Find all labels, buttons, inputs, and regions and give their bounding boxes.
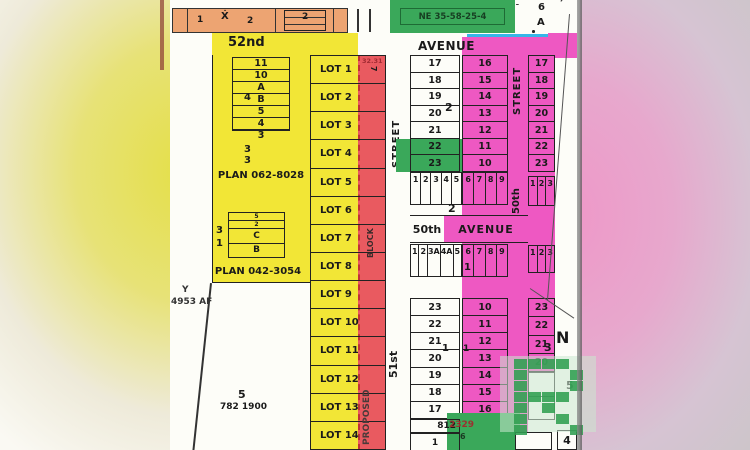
narrow-lot: 2 bbox=[538, 246, 547, 272]
lot-cell: 22 bbox=[529, 317, 554, 335]
lot-cell: 11 bbox=[463, 316, 507, 333]
left-box1-lot: 4 bbox=[233, 118, 289, 130]
boundary-tick bbox=[357, 9, 359, 32]
watermark-tile bbox=[556, 359, 569, 369]
plan1-lot-bottom: 3 bbox=[244, 155, 251, 166]
sheet-right-edge-shadow bbox=[577, 0, 582, 450]
block-1-label-east: 1 bbox=[463, 344, 469, 354]
avenue-50-name: 50th bbox=[413, 223, 441, 236]
strip-lot-2: 2 bbox=[247, 16, 253, 26]
watermark-gap bbox=[556, 381, 569, 391]
left-box1-lot: 10 bbox=[233, 70, 289, 82]
screenshot-canvas: SCALE 1:2000 2021 ST. WILSON, ALTA 1 Ẋ 2… bbox=[0, 0, 750, 450]
lot-cell: 16 bbox=[463, 56, 507, 73]
plan1-number: PLAN 062-8028 bbox=[212, 170, 310, 181]
watermark-tile bbox=[528, 392, 541, 402]
corner-lot-number: 6 bbox=[538, 2, 545, 13]
lot-cell: 20 bbox=[529, 106, 554, 123]
narrow-lot: 2 bbox=[538, 177, 547, 205]
lot-cell: 11 bbox=[463, 139, 507, 156]
clipped-scale-text: SCALE 1:2000 bbox=[215, 0, 293, 3]
left-box2-side-bottom: 1 bbox=[216, 238, 223, 249]
watermark-gap bbox=[528, 370, 541, 380]
lot-cell: 12 bbox=[463, 333, 507, 350]
west-bottom-table: 23222120191817 bbox=[410, 298, 460, 419]
narrow-lot: 9 bbox=[497, 173, 507, 204]
lot-cell: 23 bbox=[529, 155, 554, 171]
watermark-tile bbox=[542, 359, 555, 369]
corner-block-letter: A bbox=[537, 17, 545, 28]
watermark-tile bbox=[514, 414, 527, 424]
lot-cell: 13 bbox=[463, 106, 507, 123]
left-box2-side-top: 3 bbox=[216, 225, 223, 236]
left-box1-lot: 5 bbox=[233, 106, 289, 118]
left-box2-lot: C bbox=[229, 229, 284, 244]
yellow-lot-row: LOT 9 bbox=[311, 281, 385, 309]
lot-cell: 21 bbox=[411, 333, 459, 350]
watermark-gap bbox=[556, 403, 569, 413]
left-box1-side-lot: 4 bbox=[244, 92, 251, 103]
left-box1-lot: 11 bbox=[233, 58, 289, 70]
orange-parcel-strip: 1 Ẋ 2 2 bbox=[172, 8, 348, 33]
scan-edge-artifact bbox=[160, 0, 164, 70]
red-strip-dimension: 32.31 bbox=[362, 57, 383, 65]
watermark-tile bbox=[542, 403, 555, 413]
lot-cell: 22 bbox=[411, 316, 459, 333]
label-4: 4 bbox=[563, 434, 571, 447]
yellow-lot-row: LOT 2 bbox=[311, 84, 385, 112]
sub-box-line bbox=[285, 24, 325, 25]
strip-lot-x: Ẋ bbox=[221, 11, 229, 22]
left-box2-lot: 2 bbox=[229, 221, 284, 229]
parcel-boundary-line bbox=[192, 283, 211, 450]
watermark-gap bbox=[528, 414, 541, 424]
watermark-tile bbox=[514, 370, 527, 380]
far-east-top-table: 17181920212223 bbox=[528, 55, 555, 172]
left-box2-lot: B bbox=[229, 244, 284, 258]
yellow-lot-row: LOT 12 bbox=[311, 366, 385, 394]
narrow-lot: 5 bbox=[452, 173, 461, 204]
watermark-tile bbox=[556, 392, 569, 402]
street-50-label-vertical: STREET bbox=[512, 67, 523, 115]
narrow-lot: 8 bbox=[486, 245, 497, 276]
lot-cell: 23 bbox=[411, 155, 459, 171]
street-51-name-vertical: 51st bbox=[387, 351, 400, 378]
yellow-lot-row: LOT 14 bbox=[311, 422, 385, 449]
sub-box-lot-2: 2 bbox=[302, 12, 308, 22]
watermark-tile bbox=[514, 381, 527, 391]
lot-cell: 23 bbox=[411, 299, 459, 316]
lot-cell: 15 bbox=[463, 73, 507, 90]
watermark-gap bbox=[528, 403, 541, 413]
watermark-gap bbox=[542, 425, 555, 435]
strip-sub-box: 2 bbox=[284, 10, 326, 31]
lot-cell: 17 bbox=[411, 56, 459, 73]
watermark-gap bbox=[528, 381, 541, 391]
left-box2-lot: 5 bbox=[229, 213, 284, 221]
lot-cell: 14 bbox=[463, 89, 507, 106]
lot-cell: 19 bbox=[411, 368, 459, 385]
narrow-lot: 4 bbox=[442, 173, 452, 204]
block-1-label-west: 1 bbox=[442, 343, 449, 354]
watermark-tile bbox=[542, 392, 555, 402]
narrow-lot: 7 bbox=[474, 173, 485, 204]
mid-upper-west-lots: 12345 bbox=[410, 172, 462, 205]
quarter-label: NE 35-58-25-4 bbox=[419, 12, 487, 22]
yellow-lot-row: LOT 3 bbox=[311, 112, 385, 140]
plan1-lot-top: 3 bbox=[244, 144, 251, 155]
yellow-lot-row: LOT 6 bbox=[311, 197, 385, 225]
lot-cell: 21 bbox=[529, 122, 554, 139]
lot-cell: 12 bbox=[463, 122, 507, 139]
lot-cell: 20 bbox=[411, 350, 459, 367]
parcel5-plan: 782 1900 bbox=[220, 402, 267, 412]
block-3-label: 3 bbox=[544, 341, 552, 354]
block-label-vertical: BLOCK bbox=[366, 228, 375, 258]
yellow-lot-row: LOT 13 bbox=[311, 394, 385, 422]
left-subdivision-box1: 1110AB543 bbox=[232, 57, 290, 131]
narrow-lot: 1 bbox=[529, 246, 538, 272]
mid-lower-west-lots: 123A4A5 bbox=[410, 244, 462, 277]
street-50-name-vertical: 50th bbox=[511, 188, 522, 214]
street-name-52nd: 52nd bbox=[228, 35, 265, 50]
lot-cell: 18 bbox=[411, 385, 459, 402]
left-box1-lot: 3 bbox=[233, 130, 289, 141]
plan-2329: 2329 bbox=[449, 420, 474, 430]
watermark-tile bbox=[514, 425, 527, 435]
background-blur-left bbox=[0, 0, 176, 450]
avenue-50-label-box: AVENUE bbox=[444, 216, 528, 242]
narrow-lot: 1 bbox=[529, 177, 538, 205]
lot-cell: 22 bbox=[529, 139, 554, 156]
quarter-label-box: NE 35-58-25-4 bbox=[400, 8, 505, 25]
yellow-lot-row: LOT 5 bbox=[311, 169, 385, 197]
plan2-number: PLAN 042-3054 bbox=[206, 266, 310, 277]
watermark-tile bbox=[514, 359, 527, 369]
boundary-tick bbox=[369, 9, 371, 32]
survey-dot bbox=[532, 30, 535, 33]
avenue-upper-label: AVENUE bbox=[418, 39, 475, 53]
narrow-lot: 2 bbox=[419, 245, 427, 276]
east-top-table: 16151413121110 bbox=[462, 55, 508, 172]
lot-cell: 10 bbox=[463, 155, 507, 171]
north-arrow-label: N bbox=[556, 328, 569, 347]
y-marker: Y bbox=[182, 285, 189, 295]
narrow-lot: 8 bbox=[486, 173, 497, 204]
lot-cell: 18 bbox=[529, 73, 554, 90]
yellow-lot-row: LOT 11 bbox=[311, 337, 385, 365]
red-strip-lot7: 7 bbox=[369, 66, 378, 72]
green-lot-6: 6 bbox=[460, 432, 466, 441]
narrow-lot: 1 bbox=[411, 245, 419, 276]
avenue-50-band: 50th AVENUE bbox=[410, 215, 528, 243]
block-2-label: 2 bbox=[445, 101, 453, 114]
left-subdivision-box2: 5 2 C B bbox=[228, 212, 285, 258]
left-box1-lot: A bbox=[233, 82, 289, 94]
proposed-label-vertical: PROPOSED bbox=[362, 389, 372, 445]
narrow-lot: 9 bbox=[497, 245, 507, 276]
bottom-lot-1-cell: 1 bbox=[410, 433, 460, 450]
lot-cell: 22 bbox=[411, 139, 459, 156]
strip-divider bbox=[187, 9, 188, 32]
watermark-gap bbox=[542, 414, 555, 424]
narrow-lot: 6 bbox=[463, 173, 474, 204]
narrow-lot: 3 bbox=[431, 173, 441, 204]
narrow-lot: 7 bbox=[474, 245, 485, 276]
watermark-gap bbox=[556, 425, 569, 435]
narrow-lot: 1 bbox=[411, 173, 421, 204]
background-blur-right bbox=[574, 0, 750, 450]
watermark-tile bbox=[556, 414, 569, 424]
mid-upper-east-lots: 6789 bbox=[462, 172, 508, 205]
watermark-tile bbox=[514, 392, 527, 402]
strip-divider bbox=[275, 9, 276, 32]
watermark-gap bbox=[542, 381, 555, 391]
avenue-50-name-box: 50th bbox=[410, 216, 444, 242]
clipped-header-row: SCALE 1:2000 2021 ST. WILSON, ALTA bbox=[190, 0, 578, 5]
yellow-lot-row: LOT 10 bbox=[311, 309, 385, 337]
watermark-r-icon bbox=[514, 359, 583, 435]
strip-divider bbox=[333, 9, 334, 32]
lot-cell: 17 bbox=[529, 56, 554, 73]
af-marker: 4953 AF bbox=[171, 297, 212, 307]
narrow-lot: 5 bbox=[454, 245, 461, 276]
watermark-tile bbox=[528, 359, 541, 369]
quarter-section-bar: NE 35-58-25-4 bbox=[390, 0, 515, 33]
lot-cell: 21 bbox=[411, 122, 459, 139]
watermark-gap bbox=[528, 425, 541, 435]
lot-cell: 18 bbox=[411, 73, 459, 90]
parcel5-number: 5 bbox=[238, 388, 246, 401]
yellow-lot-row: LOT 4 bbox=[311, 140, 385, 168]
narrow-lot: 3 bbox=[546, 177, 554, 205]
watermark-tile bbox=[514, 403, 527, 413]
strip-lot-1: 1 bbox=[197, 15, 203, 25]
mid-upper-far-lots: 123 bbox=[528, 176, 555, 206]
narrow-lot: 2 bbox=[421, 173, 431, 204]
mid-upper-block-label: 2 bbox=[448, 202, 456, 215]
mid-lower-block-label: 1 bbox=[464, 262, 471, 273]
left-box1-lot: B bbox=[233, 94, 289, 106]
bottom-lot-1: 1 bbox=[432, 438, 438, 448]
watermark-gap bbox=[556, 370, 569, 380]
lot-cell: 19 bbox=[529, 89, 554, 106]
watermark-gap bbox=[542, 370, 555, 380]
lot-cell: 10 bbox=[463, 299, 507, 316]
narrow-lot: 3A bbox=[428, 245, 441, 276]
avenue-50-label: AVENUE bbox=[458, 223, 513, 236]
narrow-lot: 4A bbox=[441, 245, 454, 276]
